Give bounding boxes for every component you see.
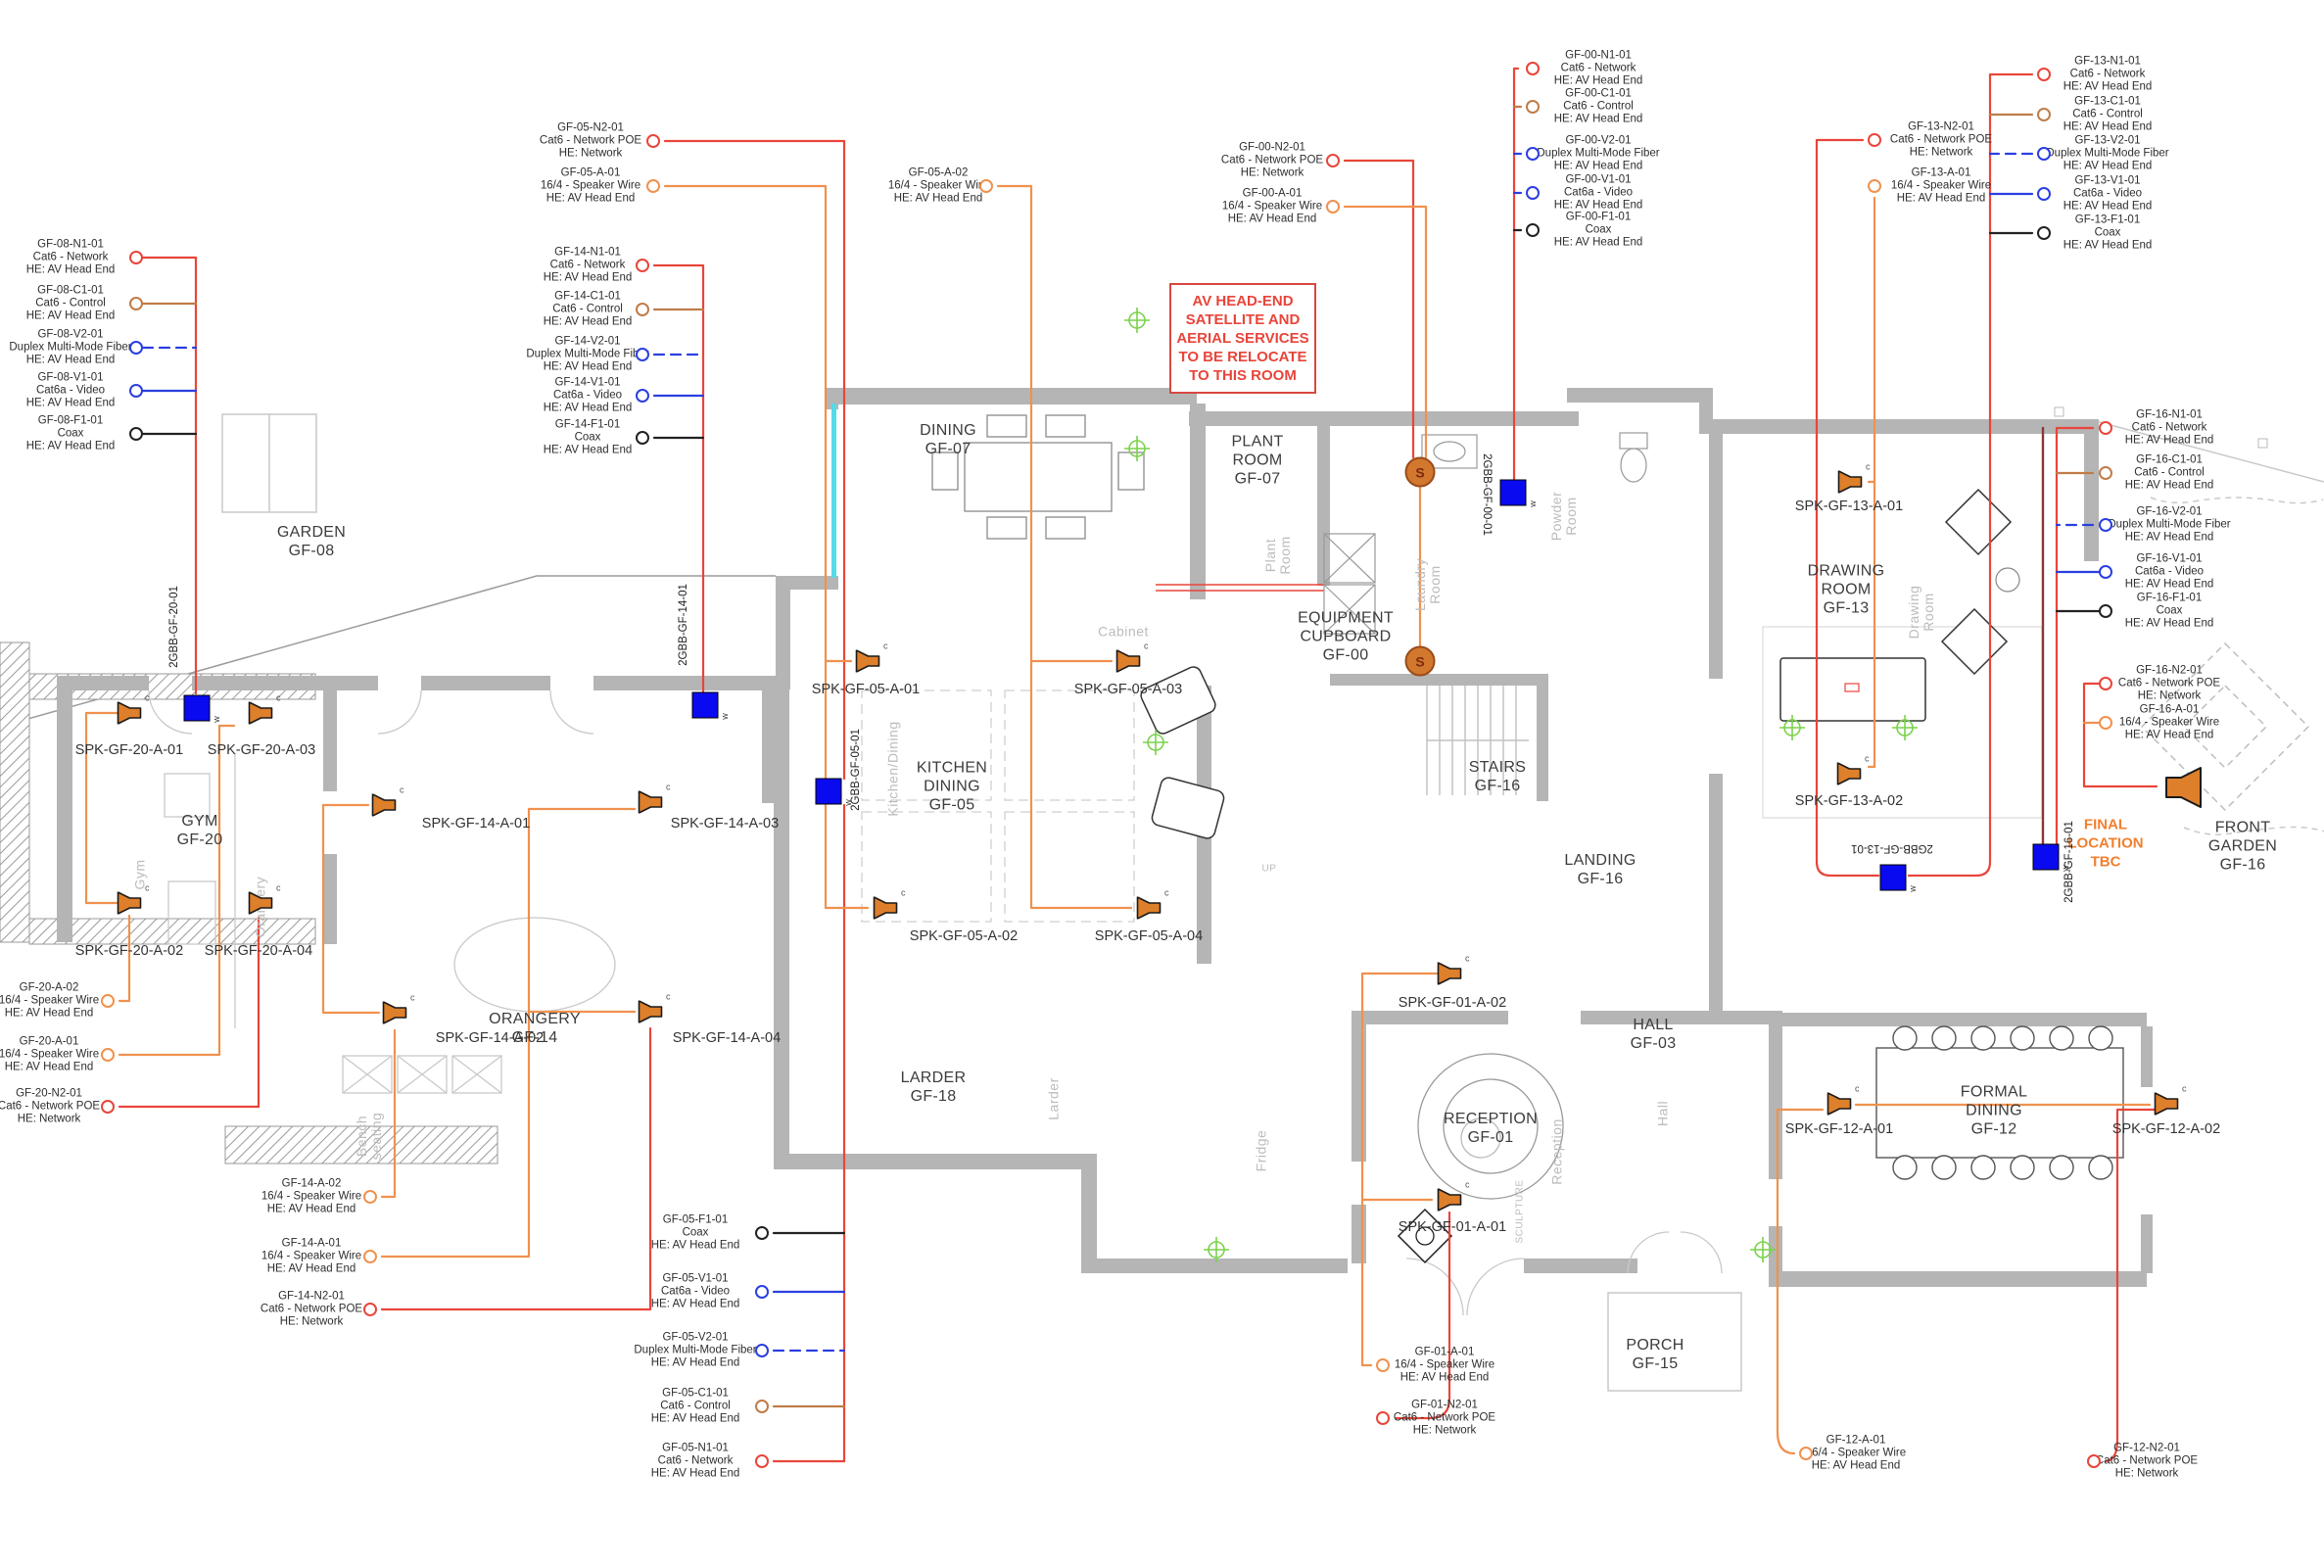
cable-callout-GF-12-A-01: GF-12-A-0116/4 - Speaker WireHE: AV Head… [1806,1435,1906,1473]
cable-callout-GF-00-F1-01: GF-00-F1-01CoaxHE: AV Head End [1554,212,1643,250]
room-label: HALLGF-03 [1631,1016,1677,1053]
cable-terminal-GF-13-C1-01 [2037,108,2051,121]
cable-terminal-GF-20-N2-01 [101,1100,115,1114]
panel-square-2GBB-GF-20-01: w [184,695,211,722]
cable-callout-GF-20-A-02: GF-20-A-0216/4 - Speaker WireHE: AV Head… [0,982,99,1021]
cable-callout-GF-05-A-01: GF-05-A-0116/4 - Speaker WireHE: AV Head… [541,167,640,206]
speaker-c-tag: c [1164,888,1169,898]
speaker-label: SPK-GF-20-A-02 [75,943,183,959]
speaker-label: SPK-GF-13-A-01 [1795,499,1903,514]
cable-terminal-GF-12-A-01 [1799,1447,1813,1460]
panel-label: 2GBB-GF-13-01 [1851,842,1933,854]
speaker-c-tag: c [145,883,150,893]
cable-callout-GF-20-A-01: GF-20-A-0116/4 - Speaker WireHE: AV Head… [0,1036,99,1074]
panel-label: 2GBB-GF-16-01 [2063,821,2075,903]
cable-callout-GF-13-V1-01: GF-13-V1-01Cat6a - VideoHE: AV Head End [2063,175,2153,214]
speaker-c-tag: c [1465,1180,1470,1190]
speaker-icon: c [639,791,663,814]
speaker-label: SPK-GF-05-A-01 [812,682,920,697]
cable-callout-GF-08-V1-01: GF-08-V1-01Cat6a - VideoHE: AV Head End [26,372,116,410]
speaker-icon: c [856,650,880,673]
cable-callout-GF-05-N2-01: GF-05-N2-01Cat6 - Network POEHE: Network [540,122,641,161]
cable-terminal-GF-20-A-01 [101,1048,115,1062]
panel-w-tag: w [211,716,220,723]
speaker-label: SPK-GF-14-A-01 [422,816,530,832]
speaker-icon: c [1137,897,1162,920]
cable-callout-GF-01-A-01: GF-01-A-0116/4 - Speaker WireHE: AV Head… [1395,1347,1494,1385]
light-marker [1890,713,1920,742]
cable-brown [143,107,2093,1406]
speaker-c-tag: c [410,993,415,1003]
speaker-label: SPK-GF-12-A-02 [2112,1121,2220,1137]
cable-terminal-GF-13-V2-01 [2037,147,2051,161]
room-label: GARDENGF-08 [277,523,346,560]
speaker-c-tag: c [666,783,671,792]
speaker-icon: c [249,702,273,725]
cable-callout-GF-05-V2-01: GF-05-V2-01Duplex Multi-Mode FiberHE: AV… [634,1332,756,1370]
panel-label: 2GBB-GF-05-01 [850,729,862,811]
speaker-label: SPK-GF-20-A-04 [205,943,312,959]
speaker-c-tag: c [883,641,888,651]
cable-callout-GF-14-C1-01: GF-14-C1-01Cat6 - ControlHE: AV Head End [544,291,633,329]
cable-terminal-GF-00-N1-01 [1526,62,1540,75]
speaker-label: SPK-GF-01-A-01 [1399,1219,1506,1235]
room-label: DININGGF-07 [920,421,976,458]
cable-callout-GF-05-C1-01: GF-05-C1-01Cat6 - ControlHE: AV Head End [651,1388,740,1426]
light-marker [1122,434,1152,463]
area-label: UP [1262,864,1277,875]
area-label: Reception [1550,1118,1565,1185]
room-label: FRONTGARDENGF-16 [2208,819,2277,875]
cable-terminal-GF-08-V1-01 [129,384,143,398]
cable-callout-GF-08-V2-01: GF-08-V2-01Duplex Multi-Mode FiberHE: AV… [9,329,131,367]
cable-callout-GF-01-N2-01: GF-01-N2-01Cat6 - Network POEHE: Network [1394,1400,1495,1438]
area-label: Cabinet [1098,625,1149,640]
speaker-icon: c [118,892,142,915]
cable-terminal-GF-00-V2-01 [1526,147,1540,161]
cable-terminal-GF-16-C1-01 [2099,466,2112,480]
speaker-icon: c [118,702,142,725]
cable-callout-GF-14-V2-01: GF-14-V2-01Duplex Multi-Mode FiberHE: AV… [526,336,648,374]
cable-callout-GF-14-A-01: GF-14-A-0116/4 - Speaker WireHE: AV Head… [261,1238,361,1276]
speaker-icon: c [1837,763,1862,785]
speaker-c-tag: c [145,693,150,703]
cable-callout-GF-08-F1-01: GF-08-F1-01CoaxHE: AV Head End [26,415,116,453]
floorplan-canvas: AV HEAD-ENDSATELLITE ANDAERIAL SERVICEST… [0,0,2324,1568]
panel-square-2GBB-GF-05-01: w [816,779,842,805]
area-label: Laundry Room [1413,558,1443,611]
satellite-point: S [1405,646,1436,677]
cable-callout-GF-13-V2-01: GF-13-V2-01Duplex Multi-Mode FiberHE: AV… [2046,135,2168,173]
speaker-label: SPK-GF-13-A-02 [1795,793,1903,809]
panel-square-2GBB-GF-16-01: w [2033,844,2060,871]
cable-callout-GF-05-F1-01: GF-05-F1-01CoaxHE: AV Head End [651,1214,740,1253]
cable-callout-GF-00-V1-01: GF-00-V1-01Cat6a - VideoHE: AV Head End [1554,174,1643,213]
cable-terminal-GF-00-C1-01 [1526,100,1540,114]
room-label: PLANTROOMGF-07 [1231,433,1283,489]
cable-terminal-GF-16-A-01 [2099,716,2112,730]
large-speaker-icon [2158,767,2202,808]
speaker-c-tag: c [276,883,281,893]
cable-terminal-GF-14-N1-01 [636,259,649,272]
cable-terminal-GF-00-A-01 [1326,200,1340,214]
panel-label: 2GBB-GF-14-01 [678,584,689,666]
room-label: PORCHGF-15 [1626,1336,1684,1373]
cable-callout-GF-08-C1-01: GF-08-C1-01Cat6 - ControlHE: AV Head End [26,285,116,323]
speaker-c-tag: c [1144,641,1149,651]
light-marker [1122,306,1152,335]
area-label: Powder Room [1549,492,1579,541]
cable-callout-GF-13-F1-01: GF-13-F1-01CoaxHE: AV Head End [2063,214,2153,253]
area-label: SCULPTURE [1515,1179,1526,1243]
satellite-point: S [1405,457,1436,488]
cable-terminal-GF-05-N2-01 [646,134,660,148]
speaker-label: SPK-GF-05-A-04 [1095,928,1203,944]
light-marker [1748,1235,1778,1264]
cable-terminal-GF-13-N2-01 [1868,133,1881,147]
cable-terminal-GF-00-F1-01 [1526,223,1540,237]
area-label: Plant Room [1263,536,1293,574]
area-label: Kitchen/Dining [886,721,901,816]
speaker-c-tag: c [1865,754,1870,764]
cable-callout-GF-14-A-02: GF-14-A-0216/4 - Speaker WireHE: AV Head… [261,1178,361,1216]
cables-layer [0,0,2324,1568]
cable-terminal-GF-00-N2-01 [1326,154,1340,167]
area-label: Drawing Room [1907,586,1936,640]
cable-terminal-GF-08-F1-01 [129,427,143,441]
cable-callout-GF-13-A-01: GF-13-A-0116/4 - Speaker WireHE: AV Head… [1891,167,1991,206]
area-label: Fridge [1255,1130,1269,1172]
cable-callout-GF-13-N2-01: GF-13-N2-01Cat6 - Network POEHE: Network [1890,121,1992,160]
room-label: EQUIPMENTCUPBOARDGF-00 [1298,609,1394,665]
speaker-icon: c [1438,1189,1462,1212]
speaker-icon: c [1116,650,1141,673]
cable-orange [86,186,2150,1453]
cable-terminal-GF-08-N1-01 [129,251,143,264]
speaker-icon: c [1838,471,1863,494]
speaker-label: SPK-GF-01-A-02 [1399,995,1506,1011]
speaker-label: SPK-GF-05-A-03 [1074,682,1182,697]
cable-terminal-GF-08-C1-01 [129,297,143,310]
light-marker [1778,713,1807,742]
cable-terminal-GF-13-F1-01 [2037,226,2051,240]
relocation-note: AV HEAD-ENDSATELLITE ANDAERIAL SERVICEST… [1169,283,1316,394]
panel-w-tag: w [1907,885,1917,892]
room-label: KITCHENDININGGF-05 [917,759,987,815]
speaker-c-tag: c [1855,1084,1860,1094]
cable-callout-GF-16-V2-01: GF-16-V2-01Duplex Multi-Mode FiberHE: AV… [2108,506,2230,545]
cable-terminal-GF-20-A-02 [101,994,115,1008]
cable-callout-GF-00-C1-01: GF-00-C1-01Cat6 - ControlHE: AV Head End [1554,88,1643,126]
speaker-c-tag: c [400,785,404,795]
speaker-icon: c [639,1001,663,1023]
cable-callout-GF-13-N1-01: GF-13-N1-01Cat6 - NetworkHE: AV Head End [2063,56,2153,94]
cable-terminal-GF-05-V2-01 [755,1344,769,1357]
speaker-label: SPK-GF-12-A-01 [1785,1121,1893,1137]
cable-callout-GF-00-N2-01: GF-00-N2-01Cat6 - Network POEHE: Network [1221,142,1323,180]
cable-blue-dashed [143,154,2093,1351]
cable-black [143,230,2101,1233]
speaker-c-tag: c [1465,954,1470,964]
cable-callout-GF-16-N1-01: GF-16-N1-01Cat6 - NetworkHE: AV Head End [2125,409,2214,448]
cable-terminal-GF-16-N1-01 [2099,421,2112,435]
cable-terminal-GF-05-A-01 [646,179,660,193]
room-label: FORMALDININGGF-12 [1961,1083,2027,1139]
cable-terminal-GF-13-V1-01 [2037,187,2051,201]
cable-callout-GF-05-V1-01: GF-05-V1-01Cat6a - VideoHE: AV Head End [651,1273,740,1311]
speaker-c-tag: c [276,693,281,703]
speaker-c-tag: c [901,888,906,898]
cable-terminal-GF-12-N2-01 [2087,1454,2101,1468]
speaker-label: SPK-GF-20-A-01 [75,742,183,758]
area-label: Hall [1656,1101,1671,1126]
speaker-label: SPK-GF-05-A-02 [910,928,1018,944]
speaker-label: SPK-GF-14-A-03 [671,816,779,832]
cable-terminal-GF-16-V1-01 [2099,565,2112,579]
cable-terminal-GF-00-V1-01 [1526,186,1540,200]
cable-callout-GF-00-N1-01: GF-00-N1-01Cat6 - NetworkHE: AV Head End [1554,50,1643,88]
cable-callout-GF-05-N1-01: GF-05-N1-01Cat6 - NetworkHE: AV Head End [651,1443,740,1481]
cable-callout-GF-00-A-01: GF-00-A-0116/4 - Speaker WireHE: AV Head… [1222,188,1322,226]
cable-callout-GF-14-F1-01: GF-14-F1-01CoaxHE: AV Head End [544,419,633,457]
cable-terminal-GF-05-C1-01 [755,1400,769,1413]
panel-w-tag: w [719,713,729,720]
cable-callout-GF-16-V1-01: GF-16-V1-01Cat6a - VideoHE: AV Head End [2125,553,2214,592]
light-marker [1202,1235,1231,1264]
panel-square-2GBB-GF-00-01: w [1500,480,1527,506]
cable-callout-GF-05-A-02: GF-05-A-0216/4 - Speaker WireHE: AV Head… [888,167,988,206]
cable-terminal-GF-14-F1-01 [636,431,649,445]
room-label: LANDINGGF-16 [1564,851,1636,888]
cable-callout-GF-08-N1-01: GF-08-N1-01Cat6 - NetworkHE: AV Head End [26,239,116,277]
cable-callout-GF-16-A-01: GF-16-A-0116/4 - Speaker WireHE: AV Head… [2119,704,2219,742]
room-label: LARDERGF-18 [901,1069,967,1106]
cable-callout-GF-12-N2-01: GF-12-N2-01Cat6 - Network POEHE: Network [2096,1443,2198,1481]
speaker-label: SPK-GF-20-A-03 [208,742,315,758]
speaker-label: SPK-GF-14-A-02 [436,1030,544,1046]
light-marker [1141,728,1170,757]
cable-terminal-GF-14-A-01 [363,1250,377,1263]
area-label: Bench seating [355,1113,384,1161]
cable-callout-GF-16-F1-01: GF-16-F1-01CoaxHE: AV Head End [2125,593,2214,631]
cable-terminal-GF-16-V2-01 [2099,518,2112,532]
cable-callout-GF-20-N2-01: GF-20-N2-01Cat6 - Network POEHE: Network [0,1088,100,1126]
cable-terminal-GF-14-N2-01 [363,1303,377,1316]
cable-terminal-GF-08-V2-01 [129,341,143,355]
speaker-c-tag: c [1866,462,1871,472]
speaker-icon: c [372,794,397,817]
cable-terminal-GF-14-V1-01 [636,389,649,403]
speaker-icon: c [1827,1093,1852,1116]
panel-w-tag: w [1527,500,1537,507]
cable-terminal-GF-13-N1-01 [2037,68,2051,81]
cable-terminal-GF-05-A-02 [979,179,993,193]
cable-terminal-GF-14-A-02 [363,1190,377,1204]
room-label: GYMGF-20 [177,812,223,849]
cable-terminal-GF-14-C1-01 [636,303,649,316]
cable-callout-GF-14-N2-01: GF-14-N2-01Cat6 - Network POEHE: Network [261,1291,362,1329]
cable-terminal-GF-13-A-01 [1868,179,1881,193]
cable-terminal-GF-16-F1-01 [2099,604,2112,618]
speaker-icon: c [1438,963,1462,985]
cable-callout-GF-16-N2-01: GF-16-N2-01Cat6 - Network POEHE: Network [2118,665,2220,703]
room-label: STAIRSGF-16 [1469,758,1526,795]
speaker-c-tag: c [666,992,671,1002]
panel-square-2GBB-GF-13-01: w [1880,865,1907,891]
speaker-icon: c [874,897,898,920]
cable-callout-GF-13-C1-01: GF-13-C1-01Cat6 - ControlHE: AV Head End [2063,96,2153,134]
speaker-label: SPK-GF-14-A-04 [673,1030,781,1046]
room-label: DRAWINGROOMGF-13 [1808,562,1885,618]
cable-callout-GF-16-C1-01: GF-16-C1-01Cat6 - ControlHE: AV Head End [2125,454,2214,493]
panel-label: 2GBB-GF-00-01 [1481,453,1493,536]
speaker-icon: c [383,1002,407,1024]
cable-terminal-GF-14-V2-01 [636,348,649,361]
cable-callout-GF-14-N1-01: GF-14-N1-01Cat6 - NetworkHE: AV Head End [544,247,633,285]
speaker-icon: c [2155,1093,2179,1116]
cable-terminal-GF-05-N1-01 [755,1454,769,1468]
cable-terminal-GF-05-F1-01 [755,1226,769,1240]
final-location-note: FINALLOCATIONTBC [2067,816,2143,872]
speaker-c-tag: c [2182,1084,2187,1094]
room-label: RECEPTIONGF-01 [1444,1110,1538,1147]
area-label: Larder [1047,1077,1062,1119]
cable-callout-GF-14-V1-01: GF-14-V1-01Cat6a - VideoHE: AV Head End [544,377,633,415]
cable-terminal-GF-05-V1-01 [755,1285,769,1299]
cable-terminal-GF-01-A-01 [1376,1358,1390,1372]
cable-terminal-GF-16-N2-01 [2099,677,2112,690]
panel-label: 2GBB-GF-20-01 [168,586,180,668]
cable-callout-GF-00-V2-01: GF-00-V2-01Duplex Multi-Mode FiberHE: AV… [1537,135,1659,173]
cable-terminal-GF-01-N2-01 [1376,1411,1390,1425]
speaker-icon: c [249,892,273,915]
panel-square-2GBB-GF-14-01: w [692,692,719,719]
